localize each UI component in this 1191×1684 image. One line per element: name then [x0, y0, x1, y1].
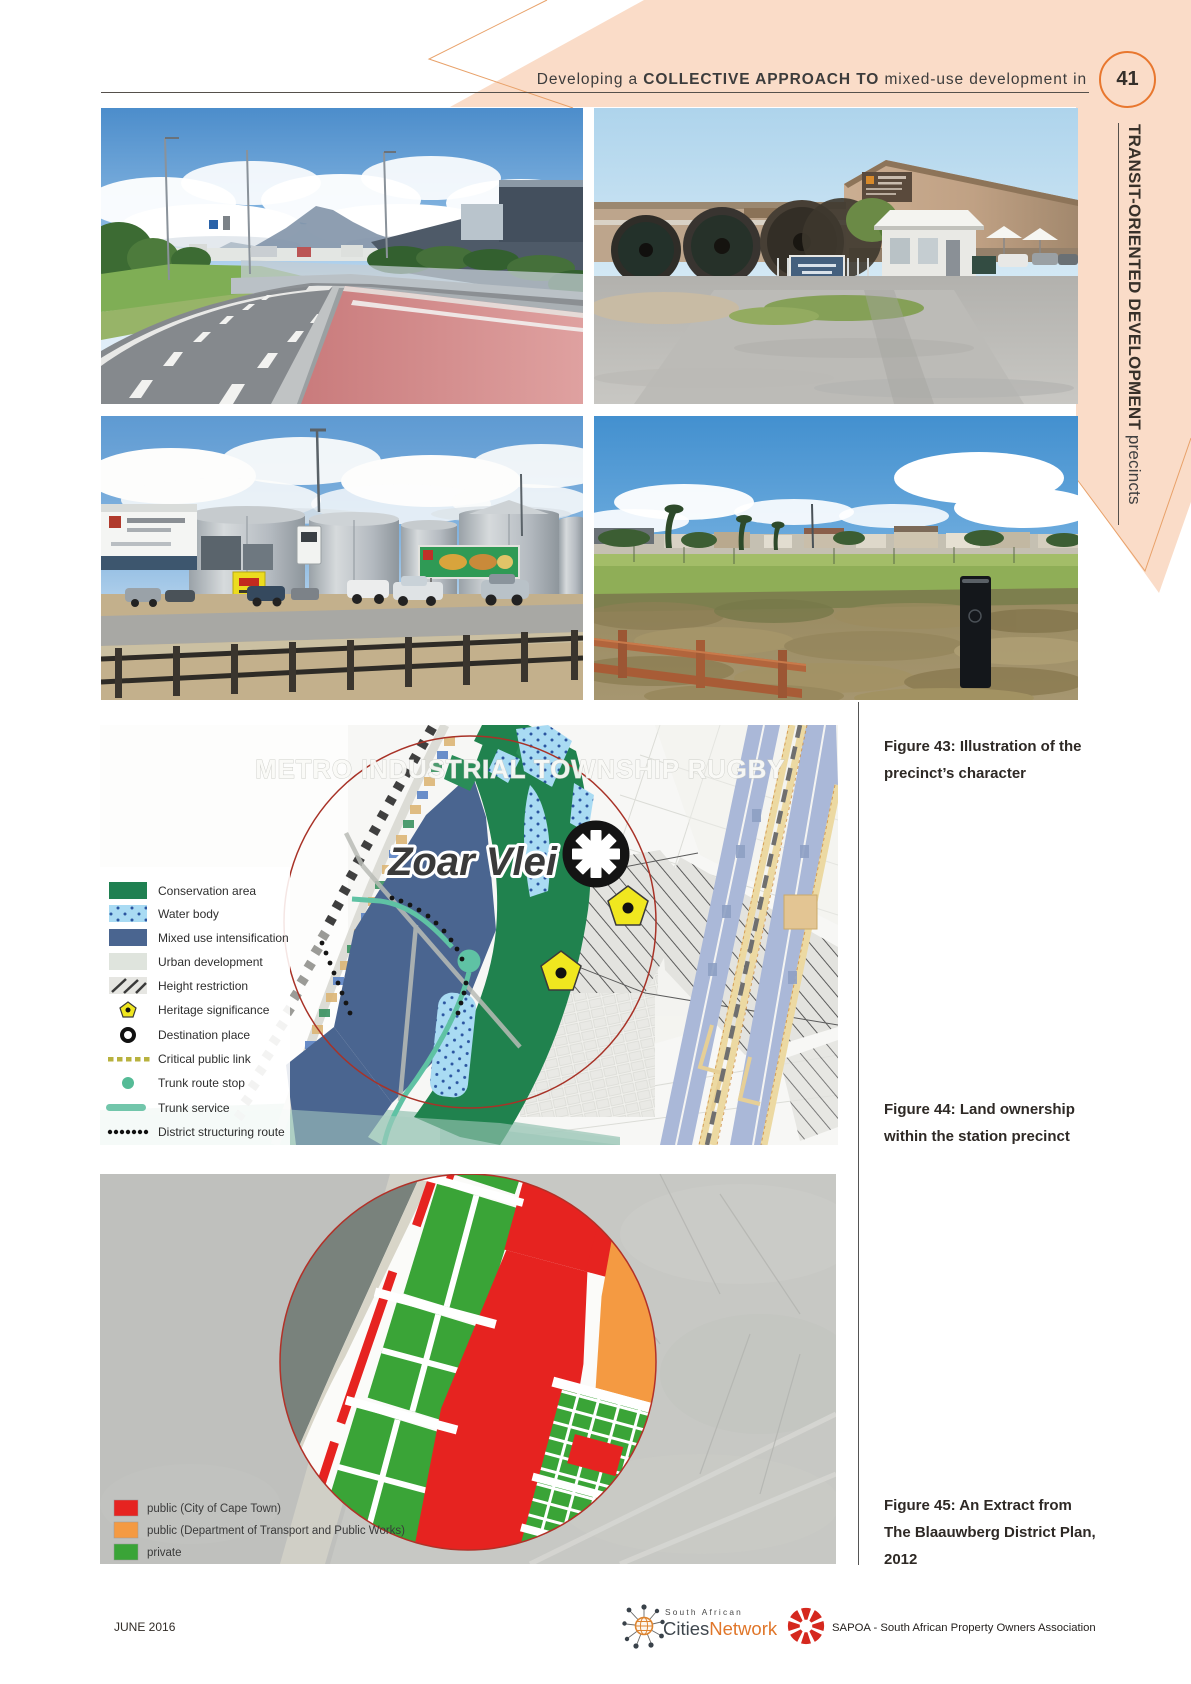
svg-text:Mixed use intensification: Mixed use intensification [158, 931, 289, 945]
svg-text:Zoar Vlei: Zoar Vlei [387, 840, 558, 884]
svg-text:Trunk route stop: Trunk route stop [158, 1076, 245, 1090]
svg-text:public (Department of Transpor: public (Department of Transport and Publ… [147, 1525, 405, 1537]
svg-text:private: private [147, 1547, 182, 1559]
svg-text:Critical public link: Critical public link [158, 1052, 252, 1066]
svg-text:South African: South African [665, 1607, 743, 1617]
svg-text:Trunk service: Trunk service [158, 1101, 230, 1115]
svg-text:public (City of Cape Town): public (City of Cape Town) [147, 1503, 281, 1515]
svg-text:Conservation area: Conservation area [158, 884, 256, 898]
svg-text:Heritage significance: Heritage significance [158, 1003, 270, 1017]
svg-text:CitiesNetwork: CitiesNetwork [663, 1618, 778, 1639]
svg-text:METRO INDUSTRIAL TOWNSHIP RUGB: METRO INDUSTRIAL TOWNSHIP RUGBY [255, 754, 785, 784]
svg-text:Destination place: Destination place [158, 1028, 250, 1042]
svg-text:District structuring route: District structuring route [158, 1125, 285, 1139]
svg-text:Water body: Water body [158, 907, 219, 921]
svg-text:Urban development: Urban development [158, 955, 263, 969]
svg-text:Height restriction: Height restriction [158, 979, 248, 993]
